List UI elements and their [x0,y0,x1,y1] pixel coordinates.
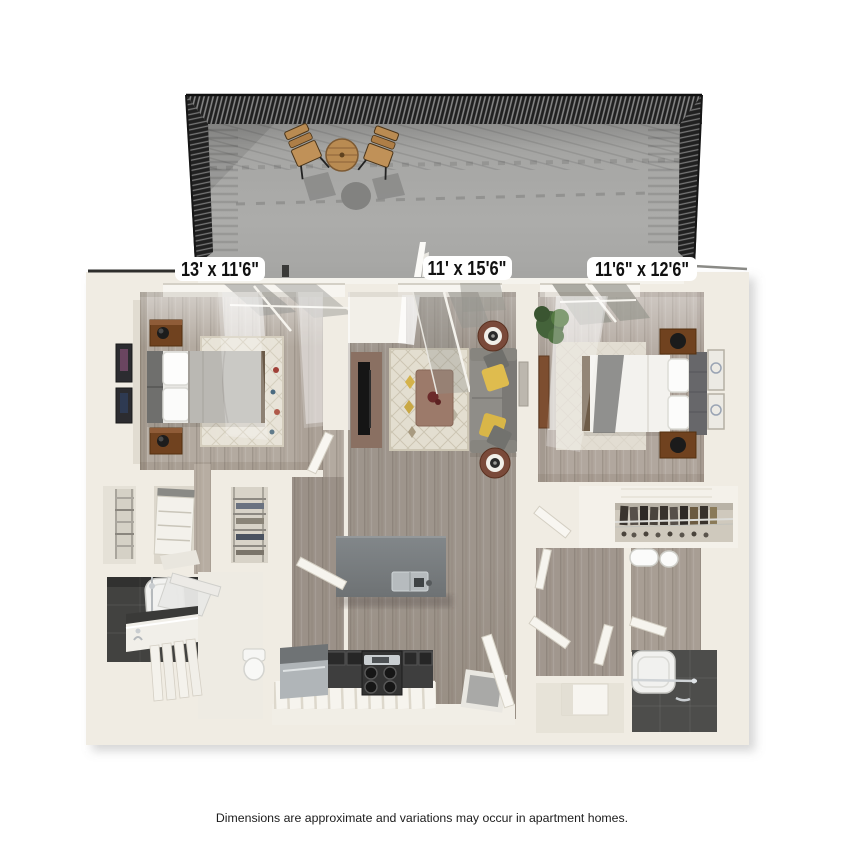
svg-text:11' x 15'6": 11' x 15'6" [428,258,507,280]
svg-text:13' x 11'6": 13' x 11'6" [181,259,259,281]
svg-text:11'6" x 12'6": 11'6" x 12'6" [595,259,689,281]
svg-text:Dimensions are approximate and: Dimensions are approximate and variation… [216,811,628,825]
